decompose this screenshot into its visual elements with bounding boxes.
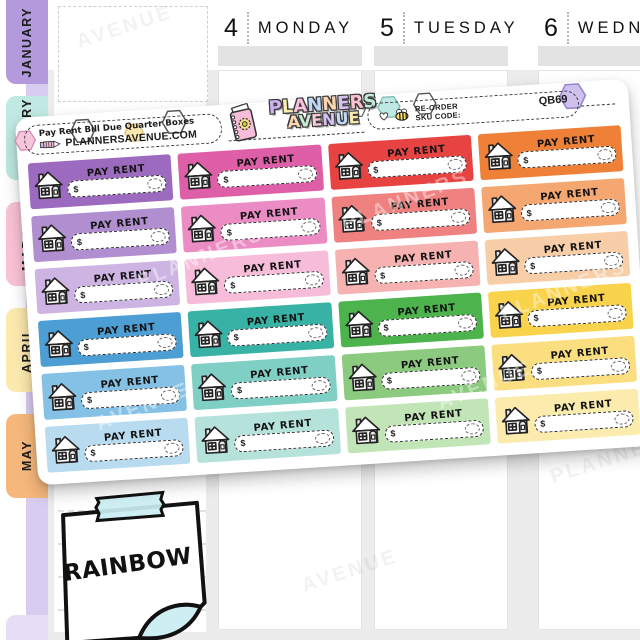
sticker-content: PAY RENT$ (68, 216, 171, 251)
brand-letter: E (348, 108, 360, 128)
house-icon (331, 148, 366, 183)
house-icon (45, 378, 80, 413)
sticker-content: PAY RENT$ (514, 134, 617, 169)
sticker-content: PAY RENT$ (231, 417, 334, 452)
currency-symbol: $ (373, 165, 379, 175)
day-header-bar (538, 46, 640, 66)
dashed-circle-icon (451, 212, 467, 224)
currency-symbol: $ (533, 313, 539, 323)
sticker-content: PAY RENT$ (381, 407, 484, 442)
pay-rent-sticker: PAY RENT$ (488, 283, 634, 338)
notes-cell (58, 6, 208, 102)
day-name: TUESDAY (414, 19, 519, 38)
house-icon (188, 263, 223, 298)
house-icon (491, 297, 526, 332)
pay-rent-sticker: PAY RENT$ (191, 355, 337, 410)
dashed-circle-icon (301, 221, 317, 233)
house-icon (181, 158, 216, 193)
sticker-content: PAY RENT$ (378, 354, 481, 389)
house-icon (195, 369, 230, 404)
pay-rent-sticker: PAY RENT$ (481, 178, 627, 233)
day-header-bar (374, 46, 508, 66)
sticker-content: PAY RENT$ (218, 206, 321, 241)
house-icon (334, 201, 369, 236)
day-header: 4 MONDAY (224, 12, 353, 44)
pay-rent-sticker: PAY RENT$ (338, 293, 484, 348)
house-icon (31, 168, 66, 203)
dashed-circle-icon (600, 202, 616, 214)
pay-rent-sticker: PAY RENT$ (328, 135, 474, 190)
pay-rent-sticker: PAY RENT$ (181, 197, 327, 252)
dashed-circle-icon (314, 432, 330, 444)
pay-rent-sticker: PAY RENT$ (334, 240, 480, 295)
sticker-content: PAY RENT$ (81, 427, 184, 462)
dashed-circle-icon (151, 231, 167, 243)
currency-symbol: $ (537, 366, 543, 376)
sticker-content: PAY RENT$ (71, 268, 174, 303)
pay-rent-sticker: PAY RENT$ (28, 154, 174, 209)
currency-symbol: $ (83, 342, 89, 352)
tab-label: MAY (20, 440, 34, 471)
currency-symbol: $ (227, 227, 233, 237)
house-icon (184, 211, 219, 246)
tab-next-month[interactable] (6, 615, 48, 640)
pay-rent-sticker: PAY RENT$ (184, 250, 330, 305)
pay-rent-sticker: PAY RENT$ (31, 207, 177, 262)
pay-rent-sticker: PAY RENT$ (38, 312, 184, 367)
dotted-divider (567, 12, 569, 44)
currency-symbol: $ (390, 428, 396, 438)
tab-label: JANUARY (20, 7, 34, 77)
sticker-content: PAY RENT$ (214, 153, 317, 188)
pay-rent-sticker: PAY RENT$ (195, 408, 341, 463)
currency-symbol: $ (77, 237, 83, 247)
currency-symbol: $ (73, 184, 79, 194)
product-label-capsule: Pay Rent Bill Due Quarter Boxes PLANNERS… (23, 113, 223, 156)
pay-rent-sticker: PAY RENT$ (478, 125, 624, 180)
pay-rent-sticker: PAY RENT$ (331, 188, 477, 243)
sticker-content: PAY RENT$ (374, 302, 477, 337)
heart-icon (378, 111, 390, 122)
house-icon (338, 254, 373, 289)
sticker-content: PAY RENT$ (228, 364, 331, 399)
dashed-circle-icon (304, 274, 320, 286)
bee-icon (393, 108, 412, 122)
day-number: 5 (380, 14, 394, 43)
sticker-content: PAY RENT$ (221, 259, 324, 294)
currency-symbol: $ (240, 438, 246, 448)
planner-product-screenshot: 4 MONDAY 5 TUESDAY 6 WEDNESDAY JANUARY F… (0, 0, 640, 640)
dashed-circle-icon (454, 264, 470, 276)
currency-symbol: $ (87, 395, 93, 405)
house-icon (341, 306, 376, 341)
house-icon (35, 220, 70, 255)
dashed-circle-icon (607, 307, 623, 319)
pay-rent-sticker: PAY RENT$ (484, 231, 630, 286)
sticker-content: PAY RENT$ (64, 163, 167, 198)
dashed-circle-icon (157, 336, 173, 348)
day-header: 5 TUESDAY (380, 12, 519, 44)
reorder-label: RE-ORDERSKU CODE: (415, 102, 461, 122)
currency-symbol: $ (233, 333, 239, 343)
sticker-content: PAY RENT$ (371, 249, 474, 284)
currency-symbol: $ (223, 174, 229, 184)
house-icon (198, 421, 233, 456)
house-icon (484, 191, 519, 226)
house-icon (38, 273, 73, 308)
sticker-content: PAY RENT$ (367, 196, 470, 231)
house-icon (481, 138, 516, 173)
dashed-circle-icon (154, 284, 170, 296)
sticker-content: PAY RENT$ (78, 374, 181, 409)
day-name: WEDNESDAY (578, 19, 640, 38)
sticker-content: PAY RENT$ (517, 187, 620, 222)
dashed-circle-icon (147, 178, 163, 190)
pay-rent-sticker: PAY RENT$ (178, 145, 324, 200)
house-icon (498, 402, 533, 437)
currency-symbol: $ (380, 270, 386, 280)
dashed-circle-icon (164, 442, 180, 454)
house-icon (348, 412, 383, 447)
sticker-content: PAY RENT$ (224, 311, 327, 346)
house-icon (495, 349, 530, 384)
brand-letter: V (298, 111, 312, 131)
house-icon (488, 244, 523, 279)
day-number: 6 (544, 14, 558, 43)
sku-code: QB69 (539, 93, 569, 107)
notebook-icon (224, 102, 262, 146)
dotted-divider (403, 12, 405, 44)
dotted-divider (247, 12, 249, 44)
pay-rent-sticker: PAY RENT$ (188, 303, 334, 358)
dashed-circle-icon (311, 379, 327, 391)
sticker-content: PAY RENT$ (521, 239, 624, 274)
brand-letter: N (322, 110, 337, 130)
house-icon (41, 326, 76, 361)
brand-letter: U (335, 109, 349, 129)
sticker-content: PAY RENT$ (364, 144, 467, 179)
house-icon (191, 316, 226, 351)
currency-symbol: $ (383, 323, 389, 333)
pay-rent-sticker: PAY RENT$ (495, 389, 640, 444)
currency-symbol: $ (80, 290, 86, 300)
currency-symbol: $ (530, 260, 536, 270)
day-header: 6 WEDNESDAY (544, 12, 640, 44)
rainbow-note: RAINBOW (47, 489, 212, 640)
house-icon (345, 359, 380, 394)
dashed-circle-icon (611, 360, 627, 372)
dashed-circle-icon (464, 422, 480, 434)
currency-symbol: $ (526, 208, 532, 218)
dashed-circle-icon (447, 159, 463, 171)
pay-rent-sticker: PAY RENT$ (345, 398, 491, 453)
pay-rent-sticker: PAY RENT$ (35, 260, 181, 315)
dashed-circle-icon (597, 149, 613, 161)
pay-rent-sticker: PAY RENT$ (41, 365, 187, 420)
currency-symbol: $ (230, 280, 236, 290)
day-header-bar (218, 46, 362, 66)
currency-symbol: $ (523, 155, 529, 165)
tab-january[interactable]: JANUARY (6, 0, 48, 84)
currency-symbol: $ (540, 419, 546, 429)
currency-symbol: $ (237, 385, 243, 395)
day-name: MONDAY (258, 19, 353, 38)
sticker-content: PAY RENT$ (524, 292, 627, 327)
dashed-circle-icon (604, 255, 620, 267)
pencil-icon (39, 139, 62, 149)
dashed-circle-icon (307, 327, 323, 339)
dashed-circle-icon (297, 169, 313, 181)
pay-rent-sticker: PAY RENT$ (491, 336, 637, 391)
dashed-circle-icon (161, 389, 177, 401)
currency-symbol: $ (387, 376, 393, 386)
house-icon (48, 431, 83, 466)
sticker-content: PAY RENT$ (74, 321, 177, 356)
sticker-sheet: Pay Rent Bill Due Quarter Boxes PLANNERS… (15, 79, 640, 486)
currency-symbol: $ (90, 448, 96, 458)
sticker-content: PAY RENT$ (528, 345, 631, 380)
sticker-content: PAY RENT$ (531, 398, 634, 433)
washi-tape-icon (96, 492, 164, 520)
day-number: 4 (224, 14, 238, 43)
pay-rent-sticker: PAY RENT$ (45, 418, 191, 473)
dashed-circle-icon (461, 370, 477, 382)
pay-rent-sticker: PAY RENT$ (341, 346, 487, 401)
dashed-circle-icon (614, 413, 630, 425)
dashed-circle-icon (457, 317, 473, 329)
sticker-grid: PAY RENT$PAY RENT$PAY RENT$PAY RENT$PAY … (28, 125, 640, 473)
currency-symbol: $ (376, 217, 382, 227)
